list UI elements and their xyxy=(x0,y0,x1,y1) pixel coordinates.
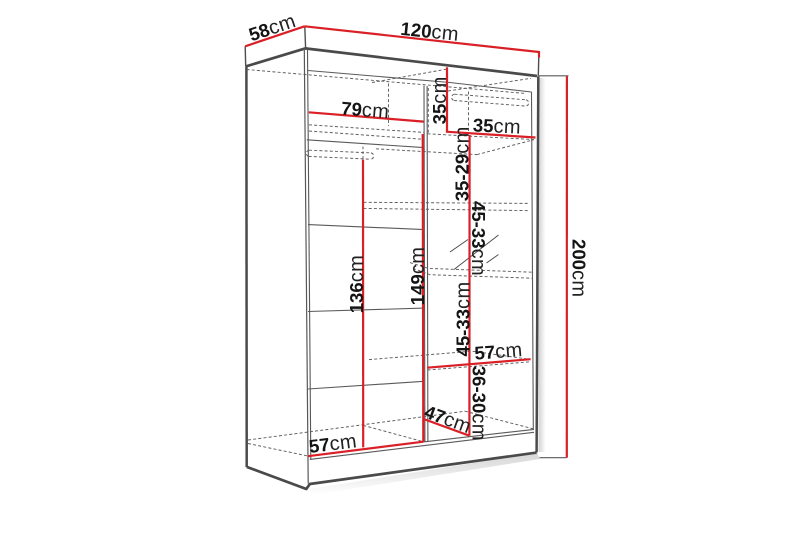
svg-text:136cm: 136cm xyxy=(346,255,368,314)
svg-text:35-29cm: 35-29cm xyxy=(452,126,474,201)
svg-text:57cm: 57cm xyxy=(474,339,524,365)
svg-text:45-33cm: 45-33cm xyxy=(467,201,489,276)
svg-text:35cm: 35cm xyxy=(429,76,451,124)
svg-text:36-30cm: 36-30cm xyxy=(468,366,490,441)
svg-text:35cm: 35cm xyxy=(472,114,521,138)
svg-text:45-33cm: 45-33cm xyxy=(453,281,475,356)
svg-text:200cm: 200cm xyxy=(567,239,589,298)
svg-text:149cm: 149cm xyxy=(407,247,429,306)
